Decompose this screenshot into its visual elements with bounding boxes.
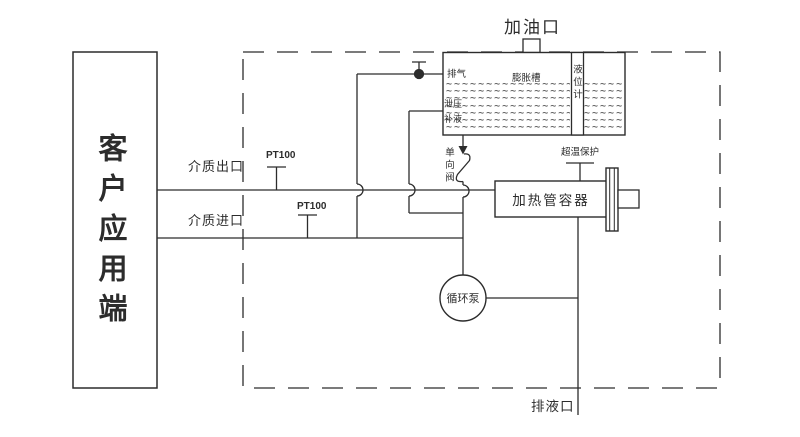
- check-valve-label: 单向阀: [441, 147, 455, 185]
- vent-valve-body: [415, 70, 424, 79]
- pump-label: 循环泵: [440, 284, 486, 312]
- pt100-outlet-label: PT100: [266, 150, 295, 161]
- vent-valve-stem: [412, 62, 426, 69]
- medium-inlet-label: 介质进口: [188, 210, 244, 229]
- vent-label: 排气: [447, 66, 466, 80]
- relief-label: 泄压: [444, 97, 462, 110]
- flow-arrow-down: [459, 146, 468, 155]
- makeup-label: 补液: [444, 112, 462, 125]
- fill-port-neck: [523, 39, 540, 53]
- schematic-diagram: ~~~~~~~~~~~~~~~~~~~~ ~~~~~~~~~~~~~~~~~~~…: [0, 0, 800, 437]
- tank-liquid-hatch-left: ~~~~~~~~~~~~~~~~~~~~ ~~~~~~~~~~~~~~~~~~~…: [446, 81, 570, 132]
- pt100-inlet-label: PT100: [297, 201, 326, 212]
- overtemp-label: 超温保护: [561, 144, 599, 158]
- level-gauge-label: 液位计: [571, 64, 583, 102]
- overtemp-sensor-symbol: [566, 163, 594, 181]
- heater-label: 加热管容器: [495, 181, 607, 217]
- heater-flange: [606, 168, 618, 231]
- check-valve-symbol: [456, 154, 470, 182]
- line-hop-3: [463, 185, 469, 197]
- pt100-outlet-symbol: [267, 167, 286, 190]
- fill-port-label: 加油口: [504, 13, 561, 38]
- heater-terminal-box: [618, 190, 639, 208]
- customer-box-label: 客户应用端: [96, 133, 132, 333]
- drain-port-label: 排液口: [531, 395, 575, 415]
- tank-liquid-hatch-right: ~~~~~~~~~~~~~~~~~~~~ ~~~~~~~~~~~~~~~~~~~…: [584, 81, 624, 132]
- medium-outlet-label: 介质出口: [188, 156, 244, 175]
- pt100-inlet-symbol: [298, 215, 317, 238]
- expansion-tank-label: 膨胀槽: [512, 70, 541, 84]
